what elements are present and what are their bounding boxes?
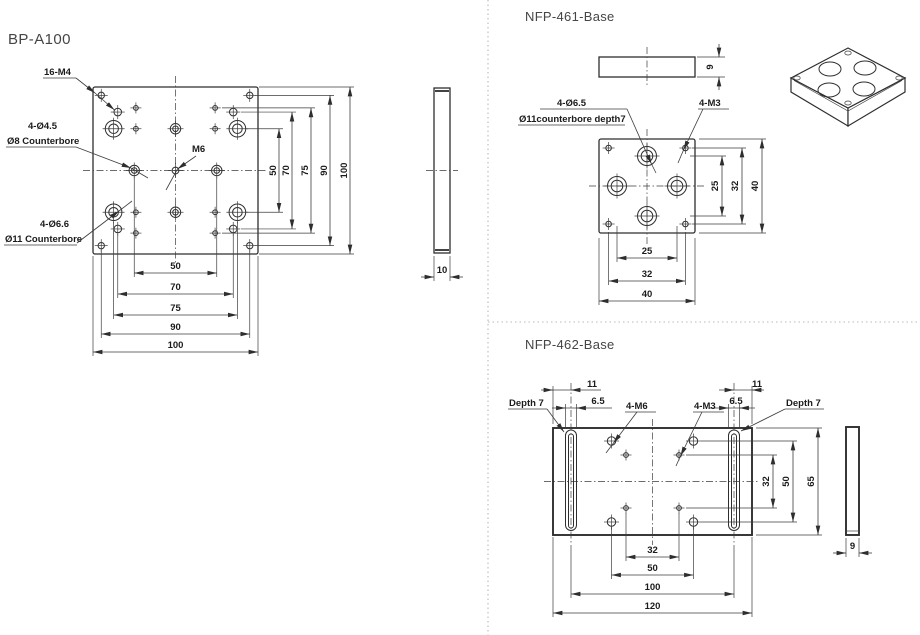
- dim-label: 65: [806, 476, 817, 487]
- bp-a100-plan-view: [83, 76, 268, 265]
- nfp-461-isometric-view: [791, 48, 905, 126]
- dim-label: 70: [170, 282, 181, 293]
- dim-label: 120: [645, 601, 661, 612]
- bp-a100-title: BP-A100: [8, 31, 71, 48]
- m4-hole: [130, 102, 141, 113]
- corner-hole: [243, 89, 256, 102]
- dim-label: 6.5: [591, 396, 605, 407]
- dim-label: 32: [642, 269, 653, 280]
- dim-label-thickness: 9: [850, 541, 855, 552]
- dim-label: 11: [587, 379, 598, 390]
- m3-corner-hole: [603, 218, 615, 230]
- counterbore-hole: [635, 204, 660, 229]
- m4-hole: [130, 207, 141, 218]
- dim-label: 25: [642, 246, 653, 257]
- nfp-461-side-view: 9: [599, 44, 725, 90]
- m6-center-hole: [168, 163, 183, 178]
- dim-label: 25: [710, 180, 721, 191]
- label-4-d45: 4-Ø4.5: [28, 121, 58, 132]
- counterbore-hole-large: [226, 201, 248, 223]
- m4-tapped-hole: [226, 222, 240, 236]
- m3-corner-hole: [603, 142, 615, 154]
- label-d11-counterbore-depth7: Ø11counterbore depth7: [519, 114, 626, 125]
- label-m6: M6: [192, 144, 205, 155]
- dim-label: 90: [170, 322, 181, 333]
- nfp-462-title: NFP-462-Base: [525, 337, 615, 352]
- m4-tapped-hole: [111, 222, 125, 236]
- dim-label: 50: [268, 165, 279, 176]
- m3-corner-hole: [679, 218, 691, 230]
- m4-hole: [130, 123, 141, 134]
- label-4-m3: 4-M3: [694, 401, 716, 412]
- dim-label: 32: [647, 545, 658, 556]
- dim-label: 32: [730, 181, 741, 192]
- label-4-m3: 4-M3: [699, 98, 721, 109]
- technical-drawing-canvas: BP-A100: [0, 0, 920, 635]
- drawing-sheet: BP-A100: [0, 0, 920, 635]
- leader-depth7-left: Depth 7: [508, 398, 564, 432]
- counterbore-hole-large: [103, 118, 125, 140]
- m3-hole: [674, 503, 685, 514]
- leader-4-d65: 4-Ø6.5 Ø11counterbore depth7: [518, 98, 656, 173]
- label-16-m4: 16-M4: [44, 67, 72, 78]
- leader-4-d45: 4-Ø4.5 Ø8 Counterbore: [6, 121, 148, 178]
- dim-label: 50: [647, 563, 658, 574]
- counterbore-hole: [635, 144, 660, 169]
- bp-a100-side-view: 10: [421, 88, 463, 281]
- nfp-462-side-view: 9: [833, 427, 872, 557]
- dim-label: 100: [339, 163, 350, 179]
- dim-label: 70: [281, 165, 292, 176]
- nfp-461-plan-view: [589, 129, 705, 244]
- dim-label-thickness: 10: [437, 265, 448, 276]
- dim-label: 50: [781, 476, 792, 487]
- counterbore-hole: [665, 174, 690, 199]
- dim-label: 40: [750, 181, 761, 192]
- label-4-m6: 4-M6: [626, 401, 648, 412]
- leader-16-m4: 16-M4: [43, 67, 115, 110]
- corner-hole: [95, 89, 108, 102]
- m3-hole: [621, 503, 632, 514]
- m4-hole: [130, 228, 141, 239]
- dim-label: 100: [168, 340, 184, 351]
- dim-label: 90: [319, 165, 330, 176]
- m4-hole: [210, 228, 221, 239]
- label-4-d65: 4-Ø6.5: [557, 98, 587, 109]
- counterbore-hole-large: [226, 118, 248, 140]
- m3-hole: [621, 450, 632, 461]
- label-depth7: Depth 7: [509, 398, 544, 409]
- counterbore-hole-medium: [126, 163, 142, 179]
- label-d8-counterbore: Ø8 Counterbore: [7, 136, 79, 147]
- label-d11-counterbore: Ø11 Counterbore: [5, 234, 82, 245]
- m4-tapped-hole: [226, 105, 240, 119]
- nfp-462-dims-top-right: 11 6.5: [710, 379, 764, 429]
- nfp-461-title: NFP-461-Base: [525, 9, 615, 24]
- counterbore-hole-medium: [209, 163, 225, 179]
- leader-m6: M6: [166, 144, 205, 190]
- dim-label: 40: [642, 289, 653, 300]
- dim-label: 6.5: [729, 396, 743, 407]
- nfp-461-section: NFP-461-Base 9 4-Ø6.5: [518, 9, 905, 305]
- dim-label: 11: [752, 379, 763, 390]
- counterbore-hole: [605, 174, 630, 199]
- dim-label-thickness: 9: [705, 64, 716, 69]
- m4-hole: [210, 123, 221, 134]
- dim-label: 75: [300, 165, 311, 176]
- dim-label: 100: [645, 582, 661, 593]
- m3-corner-hole: [679, 142, 691, 154]
- dim-label: 50: [170, 261, 181, 272]
- m4-tapped-hole: [111, 105, 125, 119]
- label-depth7: Depth 7: [786, 398, 821, 409]
- counterbore-hole-medium: [168, 121, 184, 137]
- leader-4-m3: 4-M3: [676, 401, 724, 466]
- bp-a100-section: BP-A100: [4, 31, 463, 356]
- dim-label: 32: [761, 476, 772, 487]
- dim-label: 75: [170, 303, 181, 314]
- counterbore-hole-medium: [168, 204, 184, 220]
- counterbore-hole-large: [103, 201, 125, 223]
- m4-hole: [210, 207, 221, 218]
- nfp-462-section: NFP-462-Base: [508, 337, 872, 617]
- label-4-d66: 4-Ø6.6: [40, 219, 69, 230]
- leader-depth7-right: Depth 7: [741, 398, 824, 431]
- m4-hole: [210, 102, 221, 113]
- nfp-462-dims-top-left: 11 6.5: [541, 379, 612, 429]
